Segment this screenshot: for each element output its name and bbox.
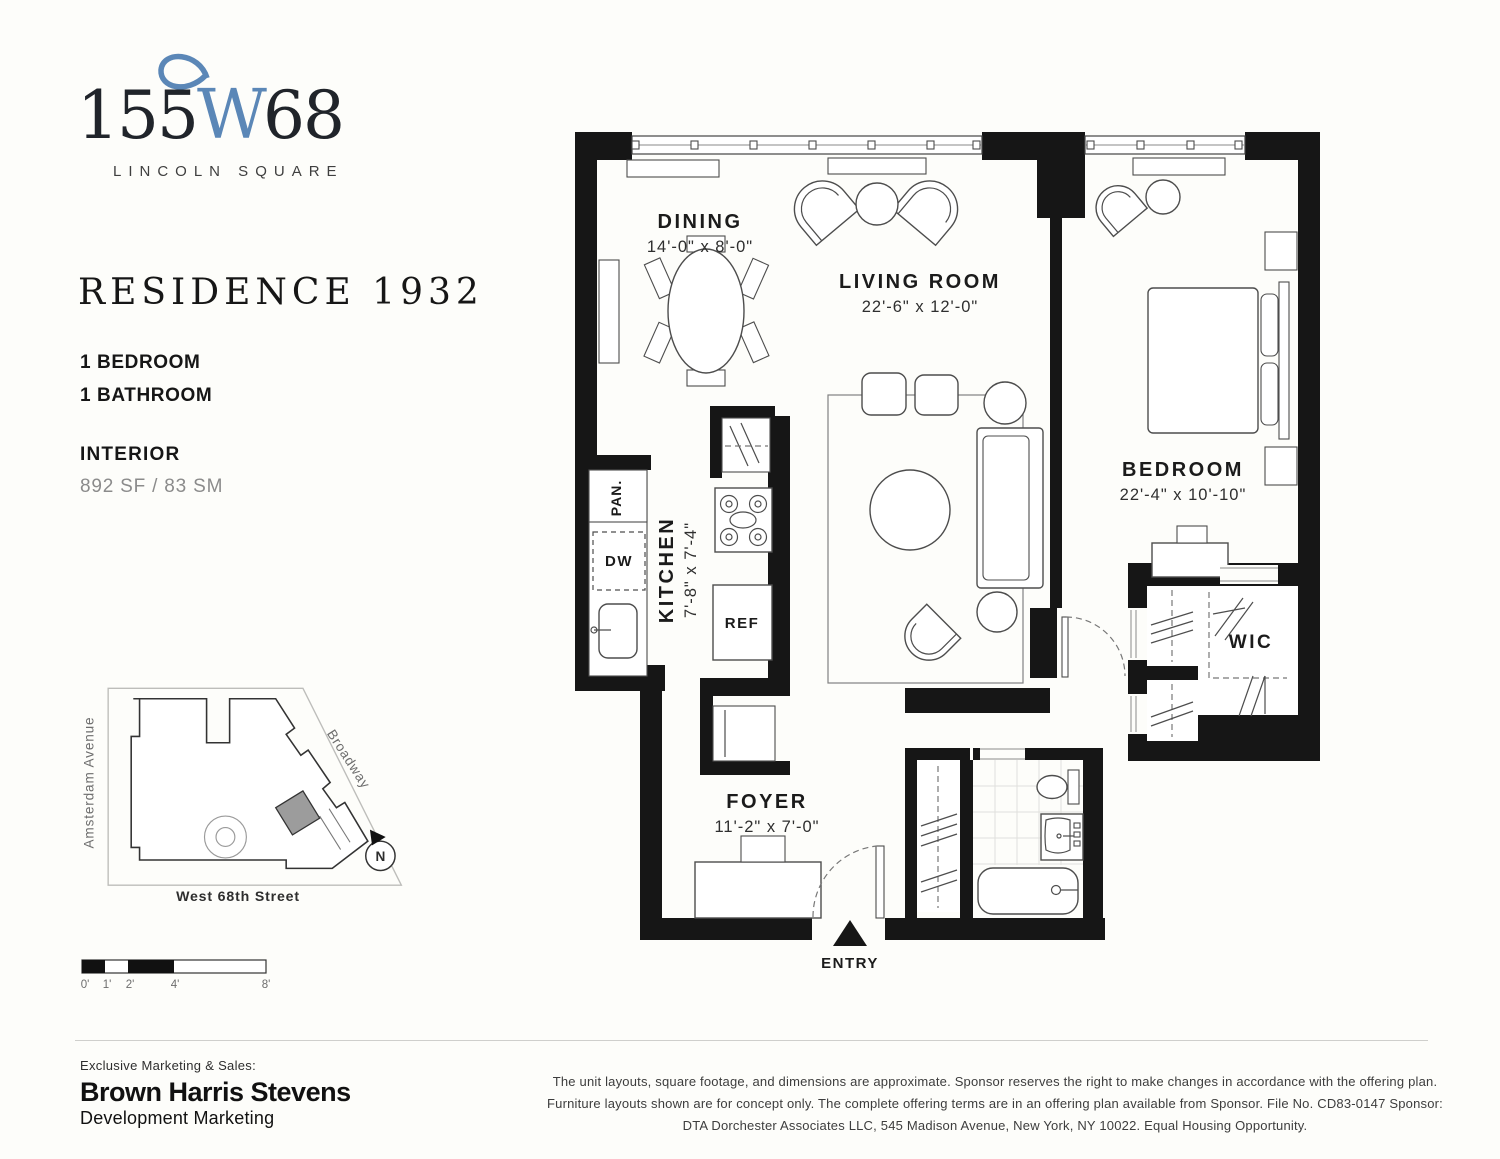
logo-w: W [197, 76, 267, 155]
toilet-bowl [1037, 776, 1067, 799]
armchair [893, 169, 969, 245]
foyer-closet [713, 706, 775, 761]
dims-dining: 14'-0" x 8'-0" [647, 238, 753, 256]
building-logo: 155 W 68 LINCOLN SQUARE [75, 52, 395, 180]
coffee-table [870, 470, 950, 550]
living-room-furniture [783, 169, 1043, 683]
side-chair [895, 604, 961, 670]
label-living: LIVING ROOM [839, 271, 1001, 293]
label-dining: DINING [658, 211, 743, 233]
scale-2: 2' [126, 979, 135, 991]
footer-divider [75, 1040, 1428, 1041]
toilet-tank [1068, 770, 1079, 804]
dims-bedroom: 22'-4" x 10'-10" [1120, 486, 1247, 504]
bathroom-count: 1 BATHROOM [80, 379, 212, 412]
street-west68: West 68th Street [176, 888, 300, 904]
brokerage-name: Brown Harris Stevens [80, 1079, 351, 1106]
scale-1: 1' [103, 979, 112, 991]
entry-door-leaf [876, 846, 884, 918]
scale-seg-1 [82, 960, 105, 973]
bed [1148, 288, 1258, 433]
logo-prefix: 155 [77, 77, 197, 154]
pillow [1261, 363, 1278, 425]
bedroom-door [1062, 617, 1125, 677]
foyer-console [695, 862, 821, 918]
north-compass: N [366, 830, 395, 871]
armchair [783, 169, 859, 245]
scale-8: 8' [262, 979, 271, 991]
scale-bar: 0' 1' 2' 4' 8' [78, 952, 298, 1001]
dims-foyer: 11'-2" x 7'-0" [714, 818, 819, 836]
footer-kicker: Exclusive Marketing & Sales: [80, 1058, 351, 1073]
scale-seg-2 [128, 960, 174, 973]
nightstand [1265, 232, 1297, 270]
pillow [1261, 294, 1278, 356]
logo-subtitle: LINCOLN SQUARE [113, 163, 395, 180]
dims-kitchen: 7'-8" x 7'-4" [682, 522, 700, 618]
unit-specs: 1 BEDROOM 1 BATHROOM [80, 346, 212, 412]
building-footprint [131, 699, 368, 869]
footer-branding: Exclusive Marketing & Sales: Brown Harri… [80, 1058, 351, 1129]
bedroom-chair [1087, 177, 1147, 237]
legal-disclaimer: The unit layouts, square footage, and di… [545, 1071, 1445, 1136]
floor-plan: DINING 14'-0" x 8'-0" LIVING ROOM 22'-6"… [575, 120, 1325, 985]
kitchen-sink [599, 604, 637, 658]
label-wic: WIC [1229, 632, 1273, 653]
bathroom [917, 749, 1083, 914]
compass-n: N [375, 849, 385, 864]
floorplan-page: { "logo": { "prefix": "155", "w": "W", "… [0, 0, 1500, 1159]
bedroom-count: 1 BEDROOM [80, 346, 212, 379]
label-dishwasher: DW [605, 553, 633, 570]
scale-4: 4' [171, 979, 180, 991]
label-kitchen: KITCHEN [656, 517, 678, 623]
dims-living: 22'-6" x 12'-0" [862, 298, 978, 316]
label-pantry: PAN. [608, 480, 624, 516]
bedroom-furniture [1087, 177, 1297, 577]
label-bedroom: BEDROOM [1122, 459, 1244, 481]
interior-area: 892 SF / 83 SM [80, 476, 223, 498]
label-refrigerator: REF [725, 615, 760, 632]
residence-title: RESIDENCE 1932 [78, 272, 484, 313]
kitchen-closet [722, 418, 770, 472]
label-foyer: FOYER [726, 791, 807, 813]
brokerage-division: Development Marketing [80, 1108, 351, 1129]
street-broadway: Broadway [324, 727, 373, 792]
windows [632, 136, 1245, 154]
label-entry: ENTRY [821, 955, 879, 972]
site-map: Amsterdam Avenue Broadway West 68th Stre… [70, 682, 406, 909]
dining-table-set [644, 236, 769, 386]
interior-label: INTERIOR [80, 444, 180, 466]
headboard [1279, 282, 1289, 439]
entry-door-swing [813, 846, 877, 917]
entry-arrow [833, 920, 867, 946]
building-logo-art: 155 W 68 [75, 52, 375, 156]
bathtub [978, 868, 1078, 914]
dresser [1152, 543, 1228, 577]
street-amsterdam: Amsterdam Avenue [81, 717, 96, 849]
nightstand [1265, 447, 1297, 485]
logo-suffix: 68 [263, 77, 343, 154]
scale-0: 0' [81, 979, 90, 991]
